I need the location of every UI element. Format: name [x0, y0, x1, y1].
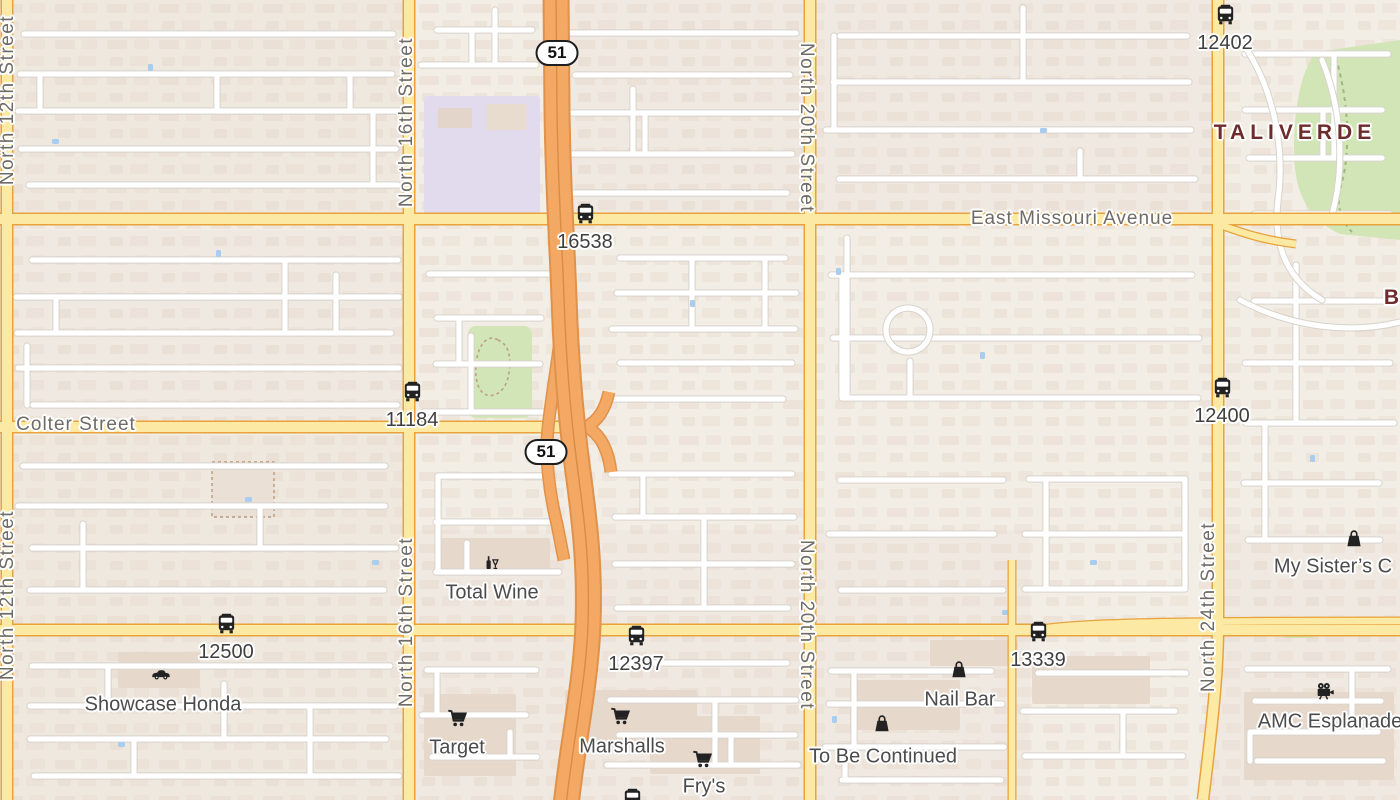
poi-name: Marshalls	[579, 736, 665, 759]
poi-name: Target	[429, 737, 485, 760]
highway-shield: 51	[525, 439, 568, 465]
street-name-horizontal: East Missouri Avenue	[971, 208, 1173, 230]
neighborhood-label: TALIVERDE	[1214, 121, 1376, 145]
bus-stop-number: 12400	[1194, 405, 1250, 428]
highway-number: 51	[548, 43, 567, 62]
bus-stop-number: 12402	[1197, 32, 1253, 55]
street-name-text: East Missouri Avenue	[971, 208, 1173, 229]
bus-icon	[574, 203, 597, 226]
bus-stop-number: 13339	[1010, 649, 1066, 672]
bus-stop-number: 16538	[557, 231, 613, 254]
bus-icon	[1027, 621, 1050, 644]
bus-icon	[1214, 4, 1237, 27]
bus-stop-number: 12397	[608, 653, 664, 676]
street-name-vertical: North 20th Street	[795, 43, 817, 213]
poi-name: To Be Continued	[809, 746, 957, 769]
poi-name: Fry's	[683, 776, 726, 799]
street-name-text: North 24th Street	[1198, 522, 1219, 692]
street-name-text: North 12th Street	[0, 15, 18, 185]
highway-shield: 51	[536, 40, 579, 66]
highway-number: 51	[537, 442, 556, 461]
neighborhood-text: TALIVERDE	[1214, 121, 1376, 144]
poi-name: Nail Bar	[924, 689, 995, 712]
label-overlay: North 12th Street North 12th Street Nort…	[0, 0, 1400, 800]
street-name-vertical: North 20th Street	[795, 540, 817, 710]
street-name-text: North 20th Street	[796, 43, 817, 213]
poi-name: Showcase Honda	[85, 694, 242, 717]
street-name-text: North 16th Street	[396, 37, 417, 207]
street-name-text: North 12th Street	[0, 510, 18, 680]
neighborhood-label: B	[1384, 286, 1400, 310]
street-name-vertical: North 12th Street	[0, 15, 19, 185]
poi-name: AMC Esplanade	[1258, 711, 1400, 734]
bus-icon	[621, 788, 644, 800]
bus-icon	[401, 381, 424, 404]
neighborhood-text: B	[1384, 286, 1400, 309]
street-name-vertical: North 12th Street	[0, 510, 19, 680]
street-name-text: North 20th Street	[796, 540, 817, 710]
map-viewport: North 12th Street North 12th Street Nort…	[0, 0, 1400, 800]
street-name-horizontal: Colter Street	[16, 414, 136, 436]
bus-icon	[1211, 377, 1234, 400]
poi-name: Total Wine	[445, 582, 538, 605]
bus-stop-number: 12500	[198, 641, 254, 664]
bus-icon	[625, 625, 648, 648]
street-name-text: Colter Street	[16, 414, 136, 435]
street-name-text: North 16th Street	[396, 537, 417, 707]
street-name-vertical: North 16th Street	[396, 37, 418, 207]
street-name-vertical: North 24th Street	[1198, 522, 1220, 692]
street-name-vertical: North 16th Street	[396, 537, 418, 707]
poi-name: My Sister’s C	[1274, 556, 1392, 579]
bus-stop-number: 11184	[386, 409, 439, 432]
bus-icon	[215, 613, 238, 636]
